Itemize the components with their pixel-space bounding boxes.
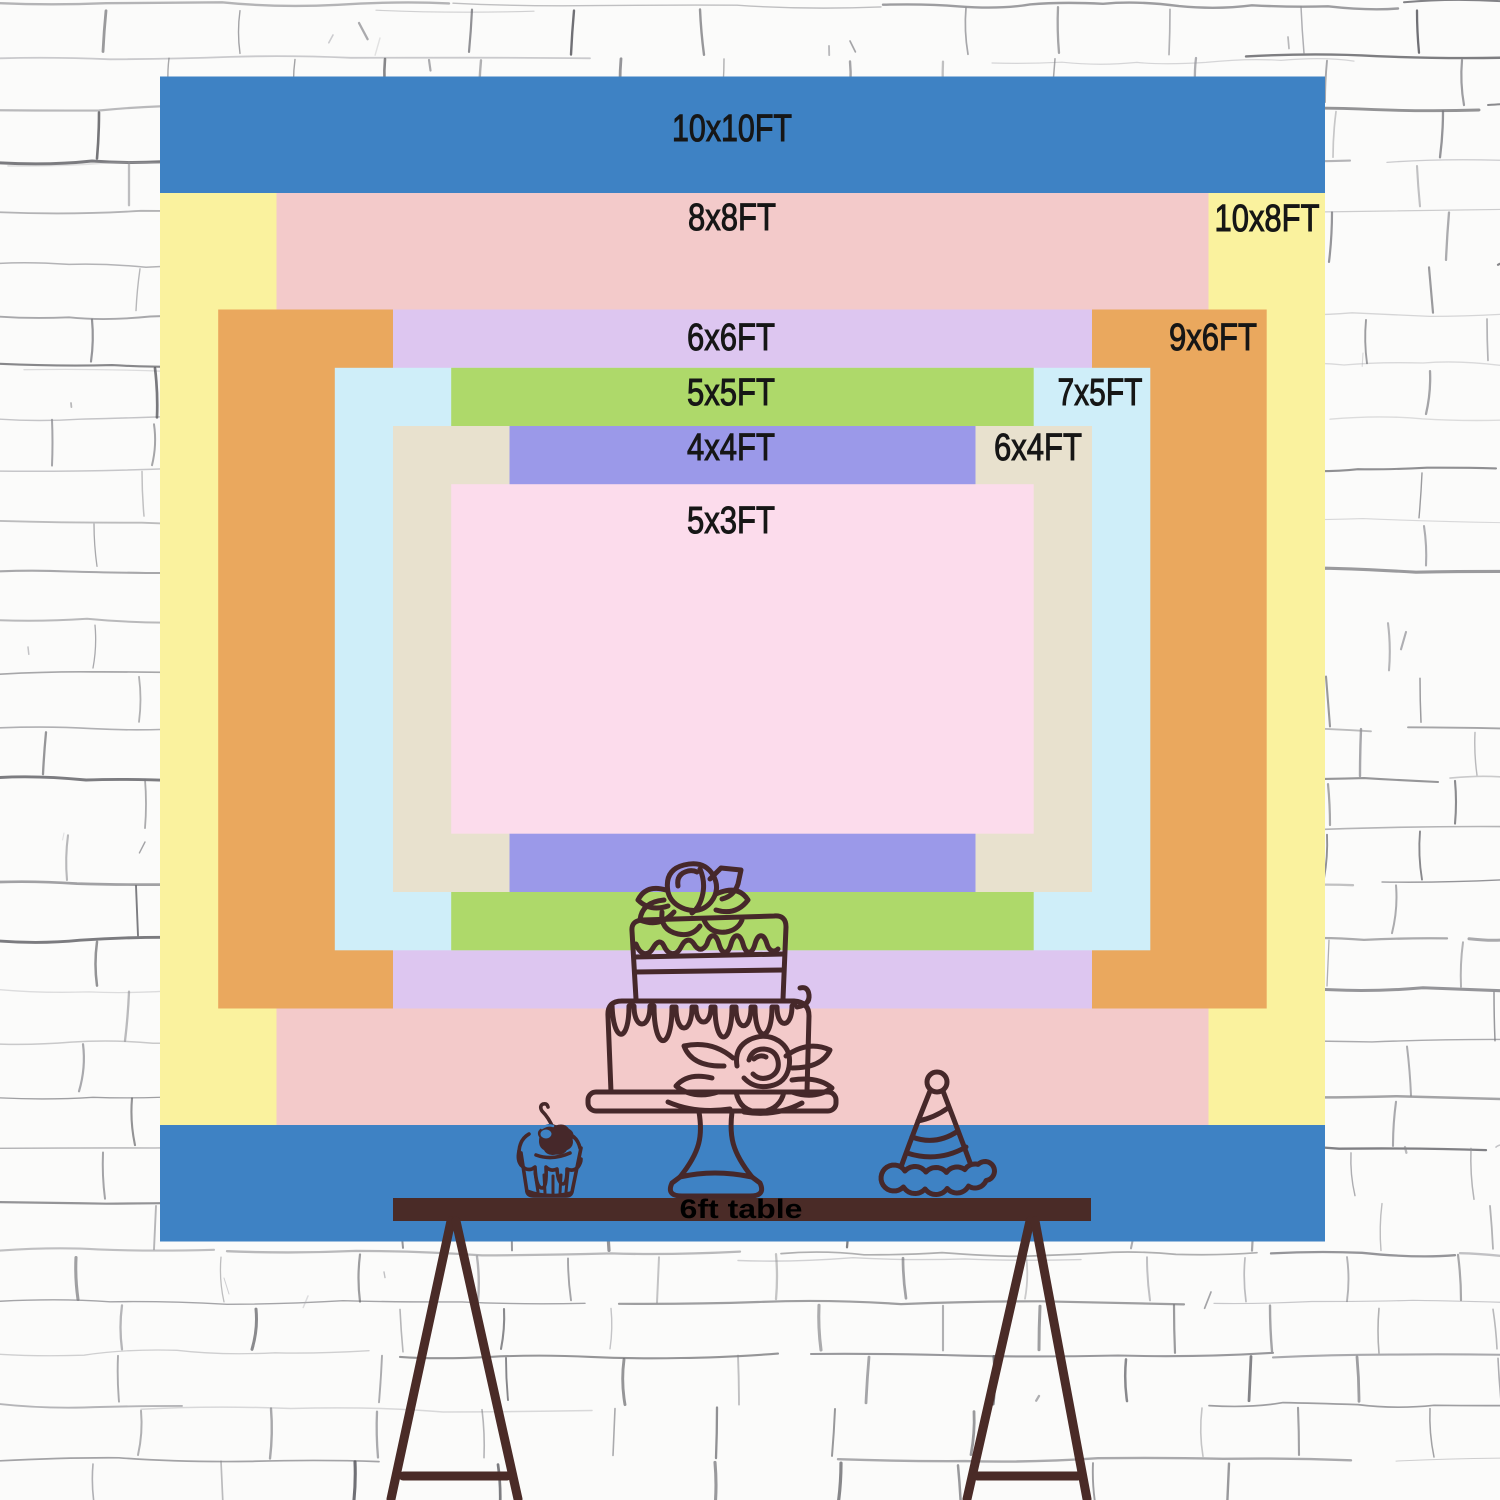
svg-text:4x4FT: 4x4FT <box>687 427 775 469</box>
svg-text:10x8FT: 10x8FT <box>1215 198 1320 240</box>
svg-text:6x6FT: 6x6FT <box>687 317 775 359</box>
svg-text:5x5FT: 5x5FT <box>687 372 775 414</box>
svg-text:7x5FT: 7x5FT <box>1058 372 1143 414</box>
svg-text:8x8FT: 8x8FT <box>688 197 776 239</box>
svg-text:5x3FT: 5x3FT <box>687 500 775 542</box>
svg-text:6x4FT: 6x4FT <box>994 427 1082 469</box>
svg-text:10x10FT: 10x10FT <box>672 108 792 150</box>
svg-text:9x6FT: 9x6FT <box>1169 317 1257 359</box>
